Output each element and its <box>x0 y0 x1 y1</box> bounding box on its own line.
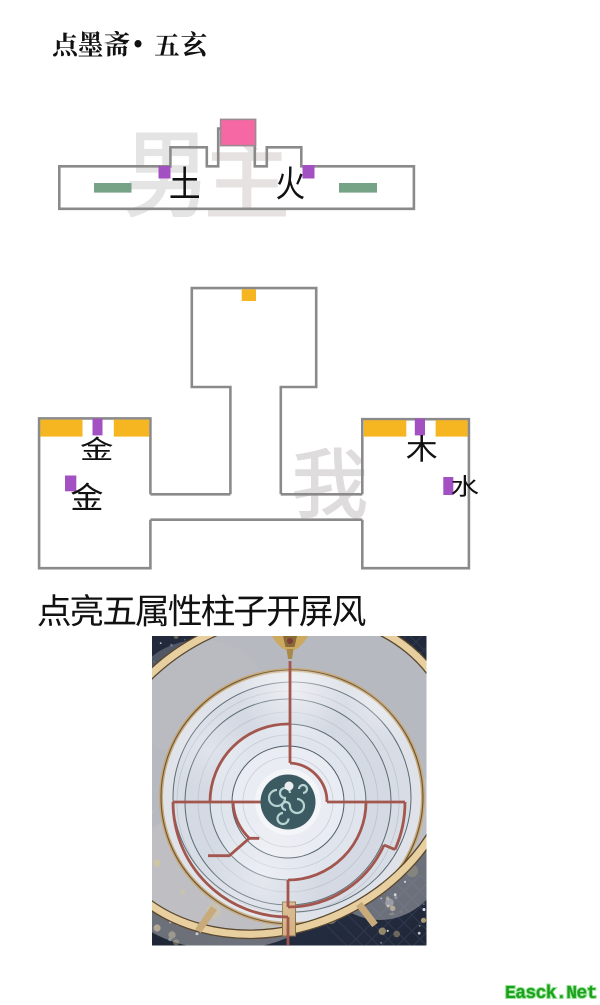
svg-text:Easck.Net: Easck.Net <box>505 984 597 1004</box>
